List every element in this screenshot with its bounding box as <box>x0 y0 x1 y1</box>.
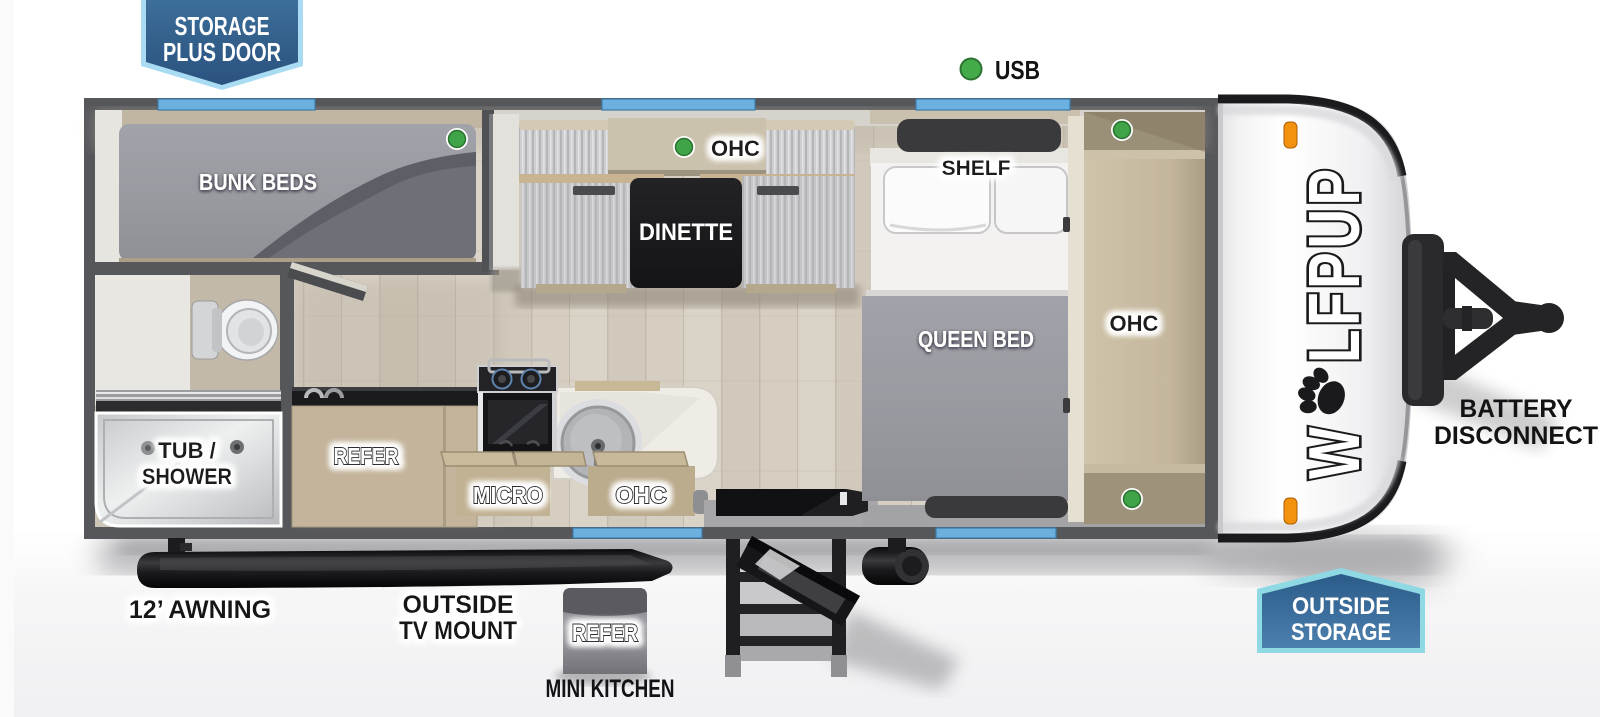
svg-text:DISCONNECT: DISCONNECT <box>1434 422 1598 450</box>
svg-text:SHOWER: SHOWER <box>142 464 232 489</box>
svg-text:STORAGE: STORAGE <box>1291 619 1391 646</box>
svg-text:BUNK BEDS: BUNK BEDS <box>199 169 317 195</box>
svg-text:TUB /: TUB / <box>158 438 215 463</box>
svg-text:SHELF: SHELF <box>942 157 1011 180</box>
svg-text:TV MOUNT: TV MOUNT <box>399 617 517 645</box>
svg-text:12’ AWNING: 12’ AWNING <box>129 596 271 624</box>
svg-text:USB: USB <box>995 55 1040 85</box>
svg-text:OUTSIDE: OUTSIDE <box>1292 593 1390 620</box>
svg-text:LFPUP: LFPUP <box>1294 165 1375 363</box>
svg-text:BATTERY: BATTERY <box>1460 395 1573 423</box>
svg-text:MINI KITCHEN: MINI KITCHEN <box>546 675 675 703</box>
svg-text:REFER: REFER <box>334 443 399 469</box>
svg-text:PLUS DOOR: PLUS DOOR <box>163 37 281 67</box>
svg-text:OUTSIDE: OUTSIDE <box>402 591 513 619</box>
svg-text:W: W <box>1294 424 1375 479</box>
svg-text:REFER: REFER <box>572 620 638 647</box>
svg-text:OHC: OHC <box>615 482 666 508</box>
svg-text:QUEEN BED: QUEEN BED <box>918 326 1034 352</box>
svg-text:DINETTE: DINETTE <box>639 219 733 246</box>
svg-text:MICRO: MICRO <box>473 482 543 508</box>
svg-text:OHC: OHC <box>1110 311 1159 336</box>
svg-text:OHC: OHC <box>711 136 760 161</box>
